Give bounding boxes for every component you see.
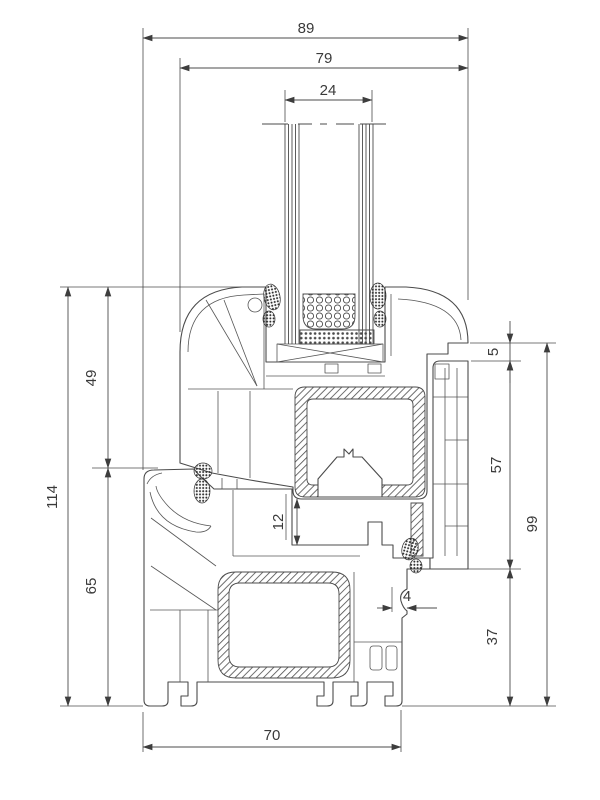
dimension-label: 24	[320, 82, 337, 99]
dimension-frame-right-height: 99	[524, 343, 547, 706]
dimension-glazing-thickness: 24	[285, 82, 372, 100]
glazing-sealant-band	[300, 330, 374, 344]
sash-underside-notch	[222, 478, 237, 489]
dimension-label: 114	[44, 485, 61, 509]
glass-pane-lines-left	[285, 124, 299, 344]
frame-gasket-right	[410, 559, 422, 573]
glazing-gasket-right	[374, 311, 386, 327]
glazing-gasket-left	[263, 311, 275, 327]
dimension-total-height: 114	[44, 287, 68, 706]
dimension-sash-height: 49	[83, 287, 108, 468]
dimension-frame-depth: 70	[143, 727, 401, 747]
dimension-base-height: 37	[484, 569, 510, 706]
dimension-overall-width: 89	[143, 20, 468, 38]
setting-block-cross	[277, 344, 383, 362]
dimension-label: 65	[83, 578, 100, 595]
dimension-frame-left-height: 65	[83, 468, 108, 706]
frame-gasket-left	[194, 479, 210, 503]
glazing-unit	[262, 124, 395, 344]
glazing-gasket-right	[370, 283, 386, 309]
window-profile-section: 89 79 24 114 49 65 5 57	[0, 0, 600, 800]
frame-jamb-outline	[430, 361, 468, 569]
technical-drawing: 89 79 24 114 49 65 5 57	[0, 0, 600, 800]
dimension-label: 89	[298, 20, 315, 37]
dimension-rebate-height: 57	[488, 361, 510, 569]
glazing-spacer-foam	[303, 294, 355, 329]
dimension-label: 99	[524, 516, 541, 533]
dimension-label: 49	[83, 370, 100, 387]
dimension-label: 57	[488, 457, 505, 474]
dimension-overlap: 5	[485, 321, 510, 383]
dimension-label: 70	[264, 727, 281, 744]
dimension-label: 4	[403, 588, 411, 605]
frame-gasket-left	[194, 463, 212, 479]
dimension-sash-width: 79	[180, 50, 468, 68]
dimension-label: 37	[484, 629, 501, 646]
dimension-label: 79	[316, 50, 333, 67]
dimension-label: 12	[270, 514, 287, 531]
glass-pane-lines-right	[359, 124, 373, 344]
dimension-label: 5	[485, 348, 502, 356]
